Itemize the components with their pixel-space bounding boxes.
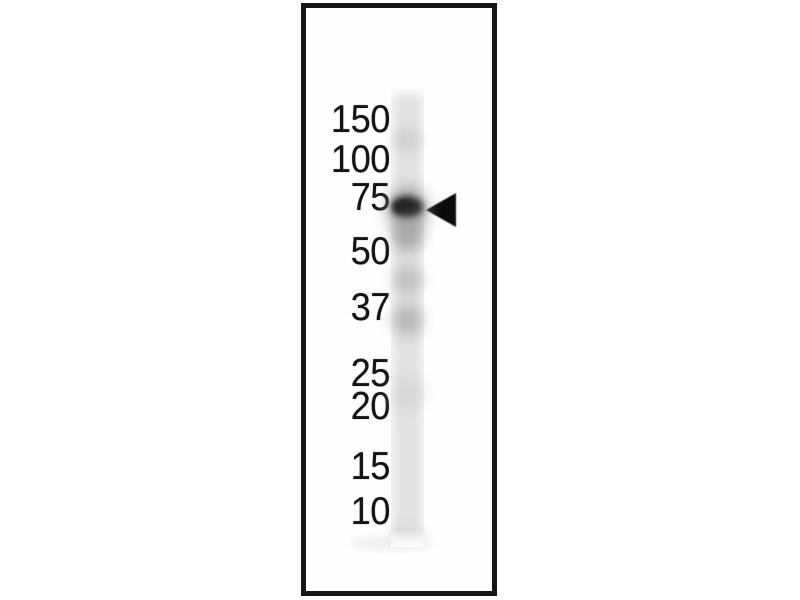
band-faint-low-smear	[394, 376, 421, 412]
mw-label-20: 20	[312, 386, 390, 428]
band-mid-smear-37k	[393, 304, 422, 336]
band-faint-upper-smear	[393, 128, 421, 152]
blot-panel: 150 100 75 50 37 25 20 15 10	[301, 3, 497, 596]
figure-canvas: 150 100 75 50 37 25 20 15 10	[0, 0, 800, 600]
mw-label-75: 75	[312, 177, 390, 219]
band-mid-smear-upper	[393, 266, 422, 294]
blot-lane	[391, 88, 424, 545]
mw-label-15: 15	[312, 446, 390, 488]
mw-label-37: 37	[312, 287, 390, 329]
mw-label-50: 50	[312, 231, 390, 273]
band-arrowhead-icon	[426, 193, 456, 227]
mw-label-10: 10	[312, 491, 390, 533]
mw-label-100: 100	[312, 139, 390, 181]
mw-label-150: 150	[312, 99, 390, 141]
band-main-band-core	[394, 200, 416, 213]
band-sub-band-smear	[393, 220, 422, 252]
band-dye-front	[391, 524, 424, 540]
